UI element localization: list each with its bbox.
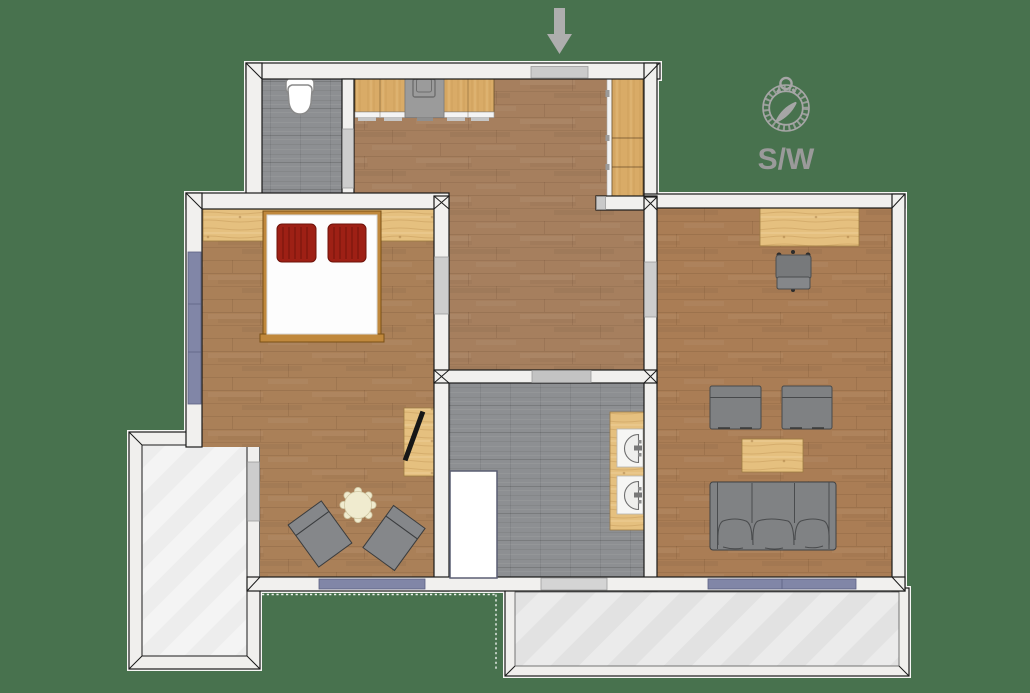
svg-text:S/W: S/W: [758, 143, 815, 176]
